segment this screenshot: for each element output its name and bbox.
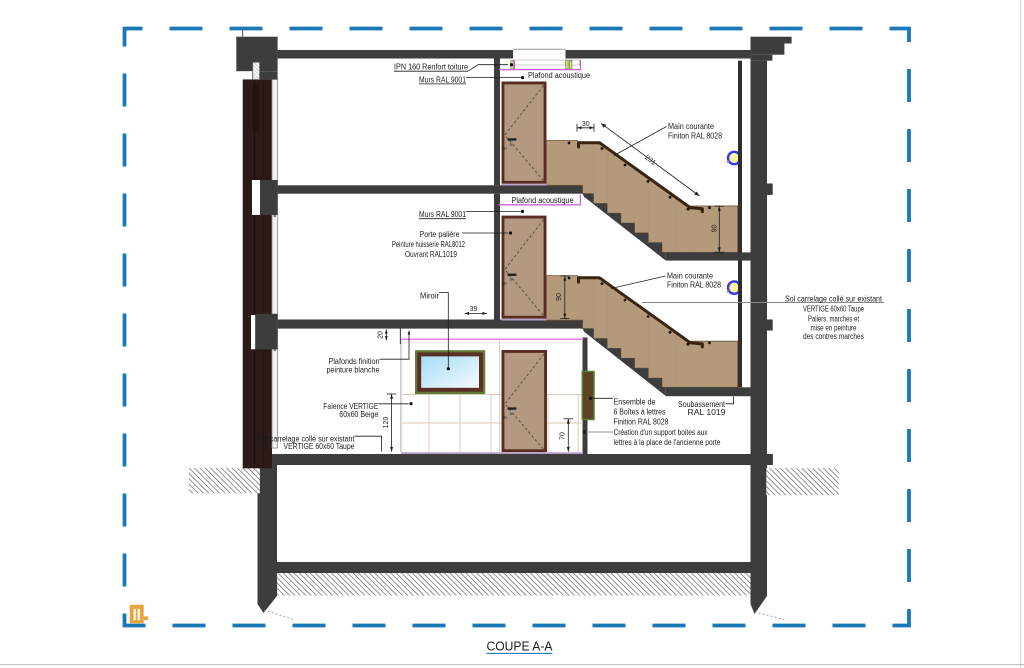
svg-text:Paliers, marches et: Paliers, marches et <box>808 314 860 323</box>
svg-text:Création d'un support boites a: Création d'un support boites aux <box>614 428 708 437</box>
svg-text:39: 39 <box>470 306 478 313</box>
svg-text:Finiton RAL 8028: Finiton RAL 8028 <box>668 131 722 140</box>
svg-text:Peinture huisserie RAL8012: Peinture huisserie RAL8012 <box>392 240 465 249</box>
svg-text:90: 90 <box>556 293 563 301</box>
svg-text:RAL 1019: RAL 1019 <box>688 408 726 417</box>
svg-text:9: 9 <box>502 282 508 285</box>
svg-text:60x60 Beige: 60x60 Beige <box>339 410 378 419</box>
svg-text:20: 20 <box>378 331 385 339</box>
svg-text:Plafond acoustique: Plafond acoustique <box>528 71 590 80</box>
svg-text:lettres à la place de l'ancien: lettres à la place de l'ancienne porte <box>614 438 721 447</box>
svg-text:Main courante: Main courante <box>668 122 714 131</box>
svg-text:peinture blanche: peinture blanche <box>327 365 380 374</box>
svg-text:90: 90 <box>711 225 718 233</box>
svg-text:Finition RAL 8028: Finition RAL 8028 <box>614 417 669 426</box>
svg-text:Miroir: Miroir <box>420 291 439 300</box>
svg-text:Plafond acoustique: Plafond acoustique <box>512 196 574 205</box>
svg-text:Murs RAL 9001: Murs RAL 9001 <box>419 75 466 84</box>
svg-text:Ensemble de: Ensemble de <box>614 397 656 406</box>
svg-text:VERTIGE 60x60 Taupe: VERTIGE 60x60 Taupe <box>284 442 355 451</box>
svg-text:9: 9 <box>502 147 508 150</box>
svg-text:Murs RAL 9001: Murs RAL 9001 <box>419 210 466 219</box>
svg-text:70: 70 <box>560 432 567 440</box>
svg-text:30: 30 <box>582 121 590 128</box>
svg-text:120: 120 <box>383 417 390 429</box>
svg-text:VERTIGE 60x60 Taupe: VERTIGE 60x60 Taupe <box>803 304 864 313</box>
svg-text:6 Boîtes à lettres: 6 Boîtes à lettres <box>614 407 666 416</box>
svg-text:IPN 160 Renfort toiture: IPN 160 Renfort toiture <box>394 63 468 72</box>
svg-text:des contres marches: des contres marches <box>803 332 864 341</box>
svg-text:Sol carrelage collé sur exist: Sol carrelage collé sur existant <box>785 294 883 303</box>
svg-text:Ouvrant RAL1019: Ouvrant RAL1019 <box>405 250 457 259</box>
svg-text:9: 9 <box>502 416 508 419</box>
svg-text:COUPE A-A: COUPE A-A <box>487 639 553 654</box>
svg-text:Porte palière: Porte palière <box>420 230 460 239</box>
svg-text:Finiton RAL 8028: Finiton RAL 8028 <box>667 280 721 289</box>
svg-text:Main courante: Main courante <box>667 271 713 280</box>
